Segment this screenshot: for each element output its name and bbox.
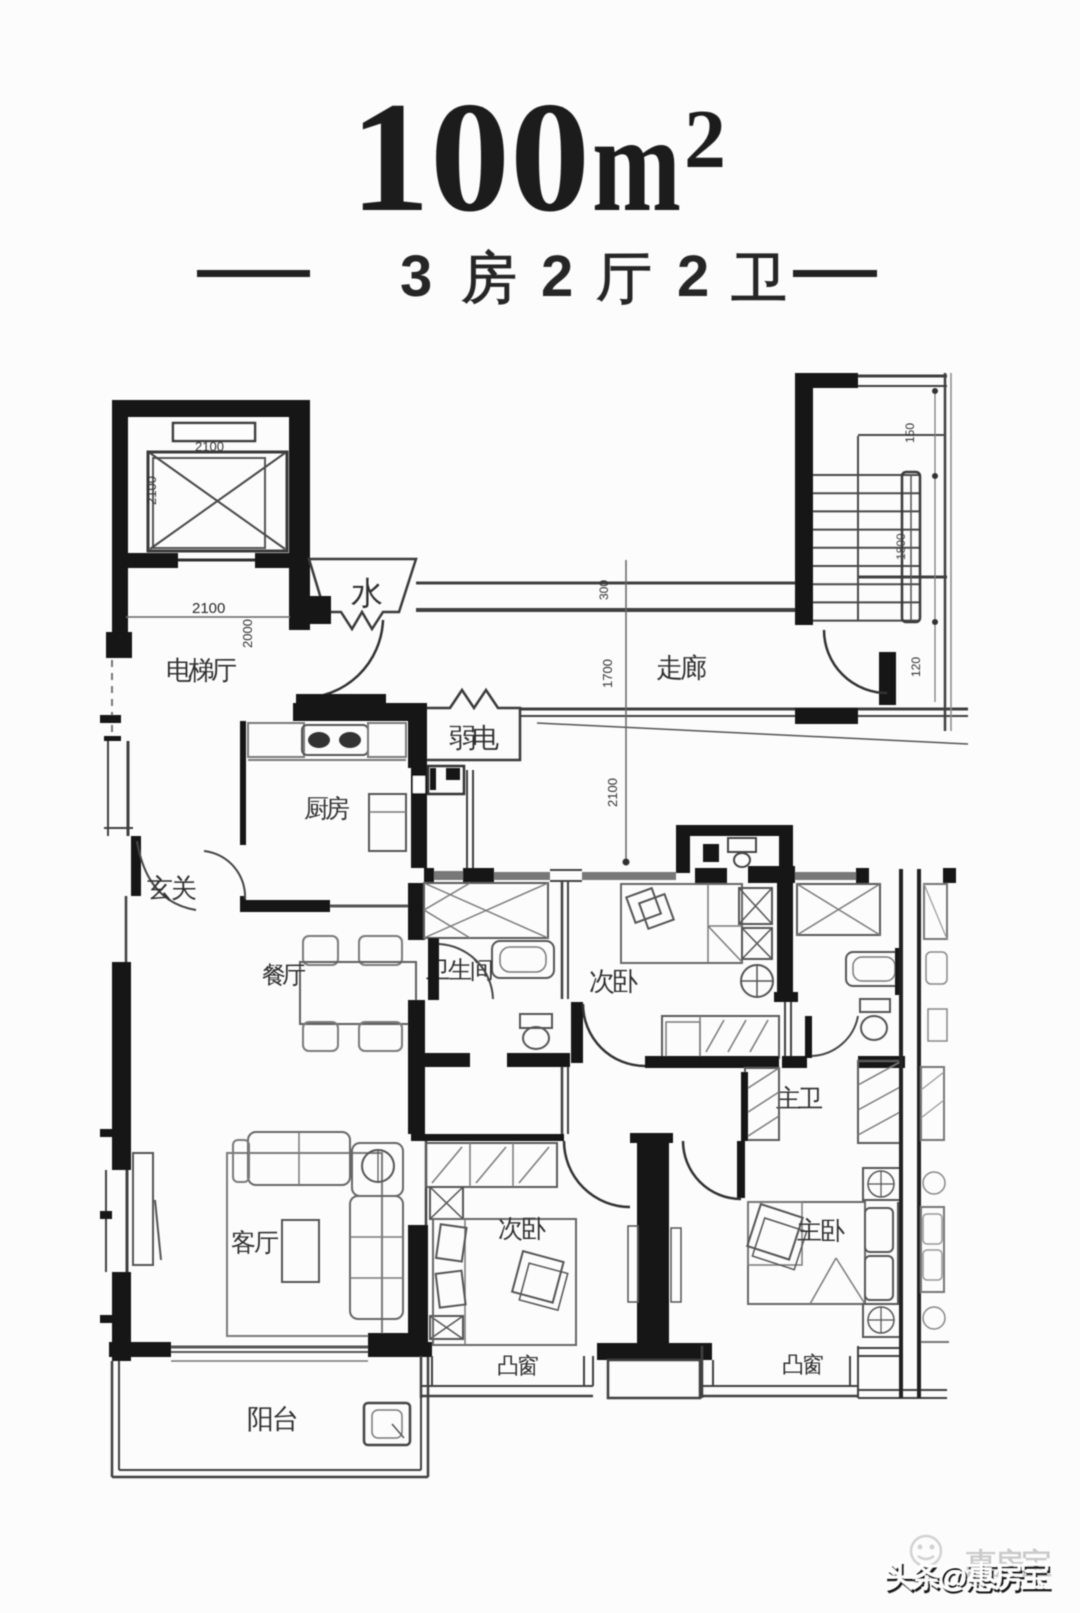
svg-text:@: @ (938, 1560, 967, 1593)
svg-text:2100: 2100 (605, 778, 620, 807)
svg-text:2000: 2000 (240, 619, 255, 648)
svg-text:3: 3 (400, 244, 432, 309)
svg-text:150: 150 (903, 423, 917, 443)
svg-text:2: 2 (541, 244, 573, 309)
svg-text:100: 100 (350, 70, 590, 245)
svg-text:m: m (592, 87, 681, 240)
svg-text:2: 2 (677, 244, 709, 309)
svg-text:1800: 1800 (894, 533, 908, 560)
svg-text:1700: 1700 (600, 659, 615, 688)
svg-text:2100: 2100 (144, 476, 159, 505)
svg-text:2100: 2100 (192, 600, 225, 617)
svg-text:2100: 2100 (195, 439, 224, 454)
svg-text:2: 2 (684, 93, 726, 186)
svg-text:120: 120 (909, 657, 923, 677)
svg-text:300: 300 (597, 580, 611, 600)
